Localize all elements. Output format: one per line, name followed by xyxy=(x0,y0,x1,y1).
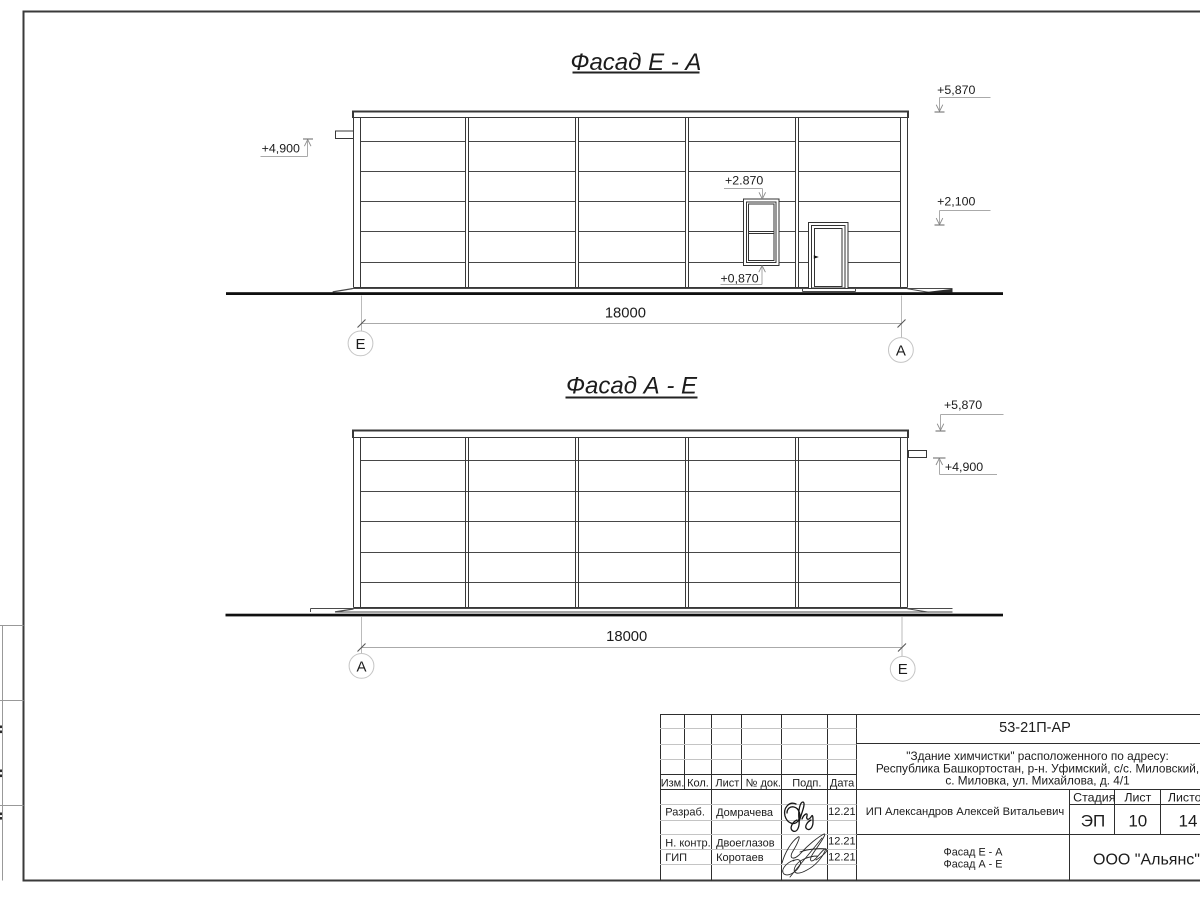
svg-text:с. Миловка, ул. Михайлова, д.: с. Миловка, ул. Михайлова, д. 4/1 xyxy=(945,774,1129,788)
svg-text:Домрачева: Домрачева xyxy=(716,807,774,819)
svg-text:Н. контр.: Н. контр. xyxy=(665,837,710,849)
svg-text:ГИП: ГИП xyxy=(665,852,687,864)
svg-text:Фасад А - Е: Фасад А - Е xyxy=(944,859,1003,871)
svg-text:Стадия: Стадия xyxy=(1073,791,1115,805)
svg-text:+2.870: +2.870 xyxy=(725,174,763,188)
svg-text:№ док.: № док. xyxy=(746,777,781,789)
svg-text:Подп.: Подп. xyxy=(792,777,821,789)
svg-text:+0,870: +0,870 xyxy=(720,271,758,285)
svg-text:Листов: Листов xyxy=(1168,791,1200,805)
svg-text:Е: Е xyxy=(898,661,908,678)
svg-text:Двоеглазов: Двоеглазов xyxy=(716,837,775,849)
svg-text:А: А xyxy=(356,658,366,675)
svg-text:А: А xyxy=(896,342,906,359)
svg-text:+4,900: +4,900 xyxy=(945,460,983,474)
svg-text:18000: 18000 xyxy=(606,629,647,645)
svg-text:ЭП: ЭП xyxy=(1081,811,1105,830)
svg-text:Коротаев: Коротаев xyxy=(716,852,764,864)
svg-text:53-21П-АР: 53-21П-АР xyxy=(999,720,1071,736)
svg-text:ИП Александров Алексей Виталье: ИП Александров Алексей Витальевич xyxy=(866,806,1065,818)
svg-text:+4,900: +4,900 xyxy=(262,141,300,155)
svg-text:+2,100: +2,100 xyxy=(937,194,975,208)
svg-text:Лист: Лист xyxy=(1124,791,1151,805)
svg-text:ООО "Альянс": ООО "Альянс" xyxy=(1093,852,1200,869)
svg-text:Кол.: Кол. xyxy=(687,777,709,789)
svg-text:14: 14 xyxy=(1179,811,1198,830)
svg-text:+5,870: +5,870 xyxy=(944,398,982,412)
svg-text:Дата: Дата xyxy=(830,777,855,789)
svg-text:Е: Е xyxy=(355,336,365,353)
svg-text:12.21: 12.21 xyxy=(828,806,856,818)
svg-text:18000: 18000 xyxy=(605,306,646,322)
svg-text:Лист: Лист xyxy=(715,777,739,789)
svg-text:Фасад Е - А: Фасад Е - А xyxy=(944,847,1004,859)
svg-text:+5,870: +5,870 xyxy=(937,83,975,97)
svg-text:Разраб.: Разраб. xyxy=(665,806,705,818)
svg-text:10: 10 xyxy=(1128,811,1147,830)
svg-text:12.21: 12.21 xyxy=(828,852,856,864)
svg-text:Фасад А - Е: Фасад А - Е xyxy=(566,372,698,399)
svg-text:12.21: 12.21 xyxy=(828,836,856,848)
svg-text:Изм.: Изм. xyxy=(661,777,685,789)
